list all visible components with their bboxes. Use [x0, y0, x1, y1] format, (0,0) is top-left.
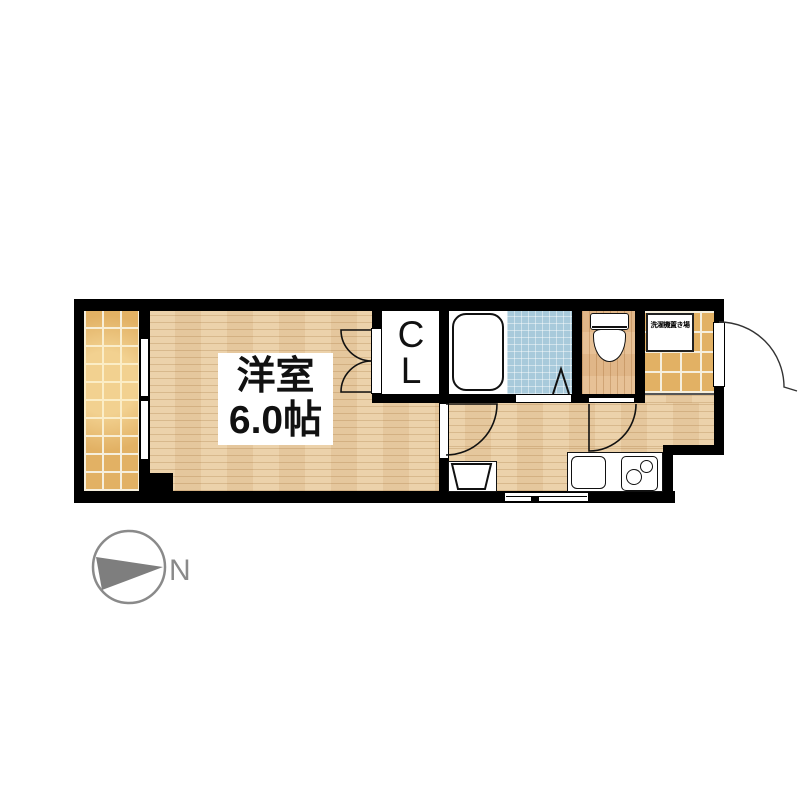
compass-circle: [93, 531, 165, 603]
wall-left: [74, 299, 84, 503]
balcony-window-mullion: [140, 396, 149, 401]
wall-top: [74, 299, 724, 311]
floor-plan-page: 洗濯機置き場 洋室 6.0帖 C L N: [0, 0, 800, 800]
closet-label: C L: [382, 311, 440, 394]
bath-door-opening: [515, 394, 572, 403]
north-arrow-icon: [96, 557, 163, 590]
kitchen-window-latch: [531, 497, 539, 501]
hallway-floor-entry-strip: [640, 395, 714, 403]
kitchen-window: [504, 492, 589, 502]
main-room-size: 6.0帖: [229, 399, 322, 443]
bath-toilet-wall: [572, 299, 582, 394]
closet-door-opening: [371, 328, 382, 394]
washer-area-box: 洗濯機置き場: [646, 313, 694, 352]
toilet-door-opening: [588, 397, 635, 403]
entrance-door-swing: [719, 322, 797, 391]
washer-area-label: 洗濯機置き場: [648, 315, 692, 330]
stove-burner-small: [640, 460, 653, 473]
bath-wet-area-floor: [507, 311, 572, 394]
toilet-tank-line: [592, 326, 627, 328]
washbasin-counter: [448, 461, 497, 492]
entrance-door-leaf: [713, 322, 725, 387]
main-room-name: 洋室: [236, 355, 314, 399]
stove-burner-large: [626, 469, 642, 485]
kitchen-window-rail: [506, 496, 587, 497]
compass-north-label: N: [169, 554, 191, 587]
main-room-label: 洋室 6.0帖: [218, 353, 333, 445]
closet-label-c: C: [398, 317, 425, 352]
toilet-right-wall: [635, 299, 645, 398]
wall-step-vertical: [663, 445, 673, 503]
closet-left-wall-stub: [372, 311, 382, 328]
room-corner-pillar: [149, 473, 173, 491]
closet-bath-wall: [439, 299, 449, 394]
kitchen-sink: [571, 456, 606, 489]
hallway-floor-upper: [439, 403, 714, 447]
compass-icon: N: [93, 531, 191, 603]
closet-label-l: L: [401, 353, 422, 388]
room-door-opening: [439, 403, 449, 459]
bathtub: [452, 313, 504, 391]
balcony-floor: [84, 311, 139, 491]
